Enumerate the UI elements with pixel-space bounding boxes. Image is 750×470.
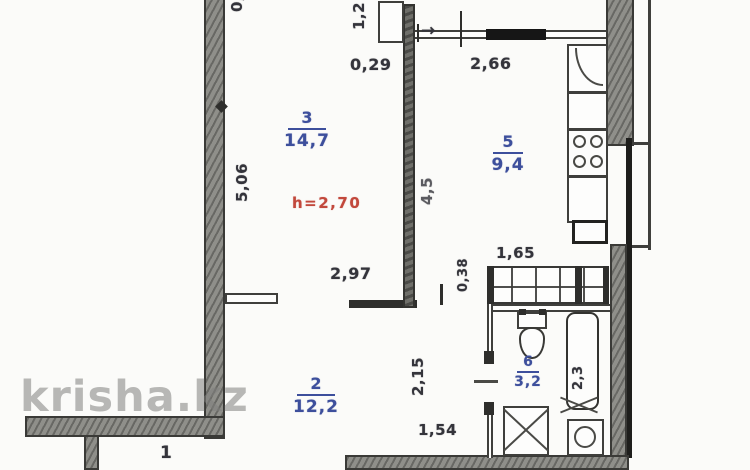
right-exterior-wall-lower [610, 244, 627, 458]
dim-1-65: 1,65 [496, 244, 535, 262]
door-jamb [484, 351, 494, 364]
dim-1-54: 1,54 [418, 421, 457, 439]
bathroom-top-wall [490, 304, 610, 312]
room-3-number: 3 [281, 110, 333, 126]
dim-5-06: 5,06 [233, 144, 251, 202]
closet-box [567, 44, 608, 93]
fraction-bar [517, 371, 539, 373]
kitchen-sink [572, 220, 608, 244]
stove [567, 129, 608, 177]
dim-4-5: 4,5 [418, 143, 436, 205]
dim-0-29: 0,29 [350, 55, 391, 74]
top-door-leaf [378, 1, 404, 43]
door-arc [575, 48, 603, 86]
room-5-label: 5 9,4 [487, 134, 529, 174]
closet-post [603, 266, 609, 306]
room-3-area: 14,7 [281, 132, 333, 150]
cabinet-box [567, 92, 608, 130]
burner-icon [590, 155, 603, 168]
dimension-tick [417, 24, 419, 42]
door-swing-line [474, 380, 498, 383]
washbasin-bowl [574, 426, 596, 448]
dim-partial-top: 0, [228, 0, 246, 12]
room-6-area: 3,2 [511, 375, 545, 390]
room-3-label: 3 14,7 [281, 110, 333, 150]
dim-2-97: 2,97 [330, 264, 371, 283]
balcony-bottom-line [632, 142, 650, 145]
room-5-number: 5 [487, 134, 529, 150]
room-2-number: 2 [290, 376, 342, 392]
balcony-connector-line [630, 245, 650, 248]
room-divider-stub [225, 293, 278, 304]
dimension-tick [460, 11, 462, 47]
closet-post [575, 266, 582, 306]
counter-box [567, 176, 608, 223]
room-6-number: 6 [511, 355, 545, 369]
room-6-label: 6 3,2 [511, 355, 545, 390]
burner-icon [590, 135, 603, 148]
door-tick [440, 284, 443, 305]
toilet-knob [519, 309, 526, 315]
fraction-bar [297, 394, 335, 396]
fraction-bar [493, 152, 523, 154]
toilet-knob [539, 309, 546, 315]
dim-0-38: 0,38 [456, 240, 471, 292]
door-opening [485, 363, 495, 403]
central-wall [403, 4, 415, 308]
fraction-bar [288, 128, 326, 130]
floor-plan: → [0, 0, 750, 470]
bottom-left-stub-wall [84, 435, 99, 470]
burner-icon [573, 135, 586, 148]
dim-2-66: 2,66 [470, 54, 511, 73]
krisha-watermark: krisha.kz [20, 372, 249, 422]
dim-2-15: 2,15 [409, 336, 427, 396]
dimension-arrow-icon: → [421, 21, 436, 41]
room-2-area: 12,2 [290, 398, 342, 416]
balcony-line [648, 0, 651, 250]
right-exterior-wall-upper [606, 0, 634, 146]
door-jamb [484, 402, 494, 415]
burner-icon [573, 155, 586, 168]
closet-post [487, 266, 494, 306]
hall-closet [487, 266, 609, 306]
dim-1-2: 1,2 [350, 0, 368, 30]
room-2-label: 2 12,2 [290, 376, 342, 416]
window-bar [486, 29, 546, 40]
ceiling-height-note: h=2,70 [292, 194, 361, 212]
dim-2-3: 2,3 [571, 330, 586, 390]
room-1-number: 1 [160, 443, 172, 463]
room-5-area: 9,4 [487, 156, 529, 174]
